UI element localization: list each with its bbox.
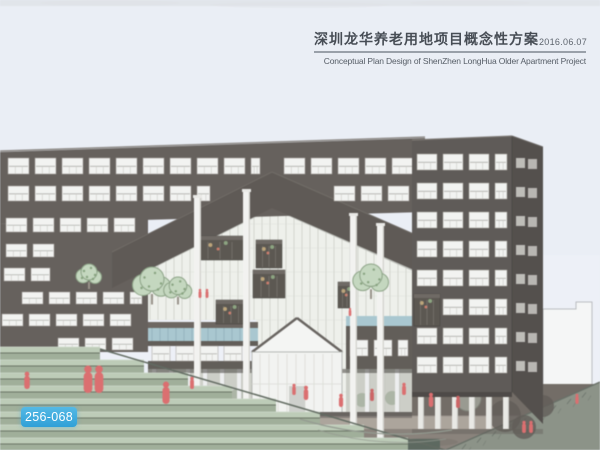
title-row: 深圳龙华养老用地项目概念性方案 2016.06.07 xyxy=(314,30,586,48)
page-title: 深圳龙华养老用地项目概念性方案 xyxy=(314,30,539,48)
presentation-slide: 深圳龙华养老用地项目概念性方案 2016.06.07 Conceptual Pl… xyxy=(0,0,600,450)
date-label: 2016.06.07 xyxy=(539,37,587,47)
title-block: 深圳龙华养老用地项目概念性方案 2016.06.07 Conceptual Pl… xyxy=(314,30,586,70)
title-divider xyxy=(314,51,586,53)
id-badge: 256-068 xyxy=(21,407,77,427)
subtitle-english: Conceptual Plan Design of ShenZhen LongH… xyxy=(324,56,586,66)
